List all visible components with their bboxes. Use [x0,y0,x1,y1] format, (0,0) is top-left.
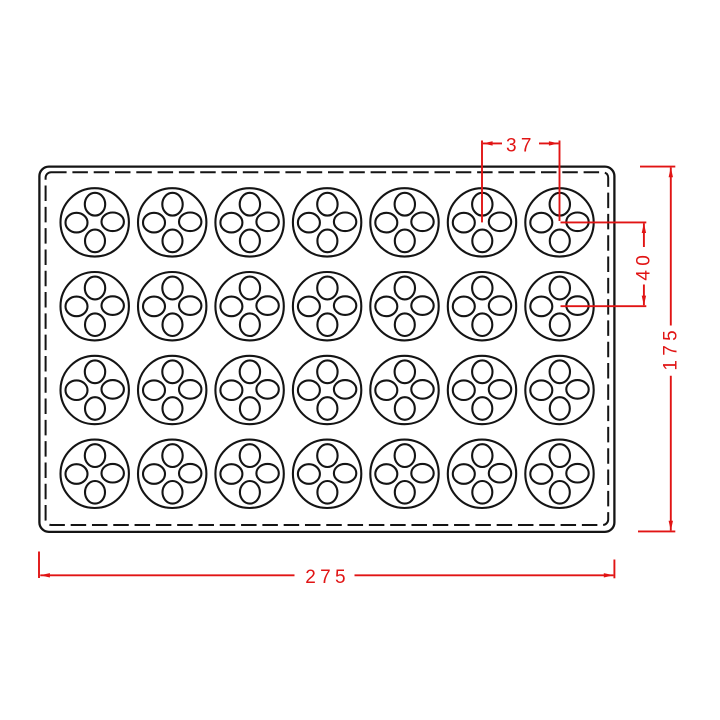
svg-text:175: 175 [661,326,682,371]
svg-text:40: 40 [634,251,655,281]
svg-text:275: 275 [305,567,350,588]
svg-text:37: 37 [506,136,536,157]
